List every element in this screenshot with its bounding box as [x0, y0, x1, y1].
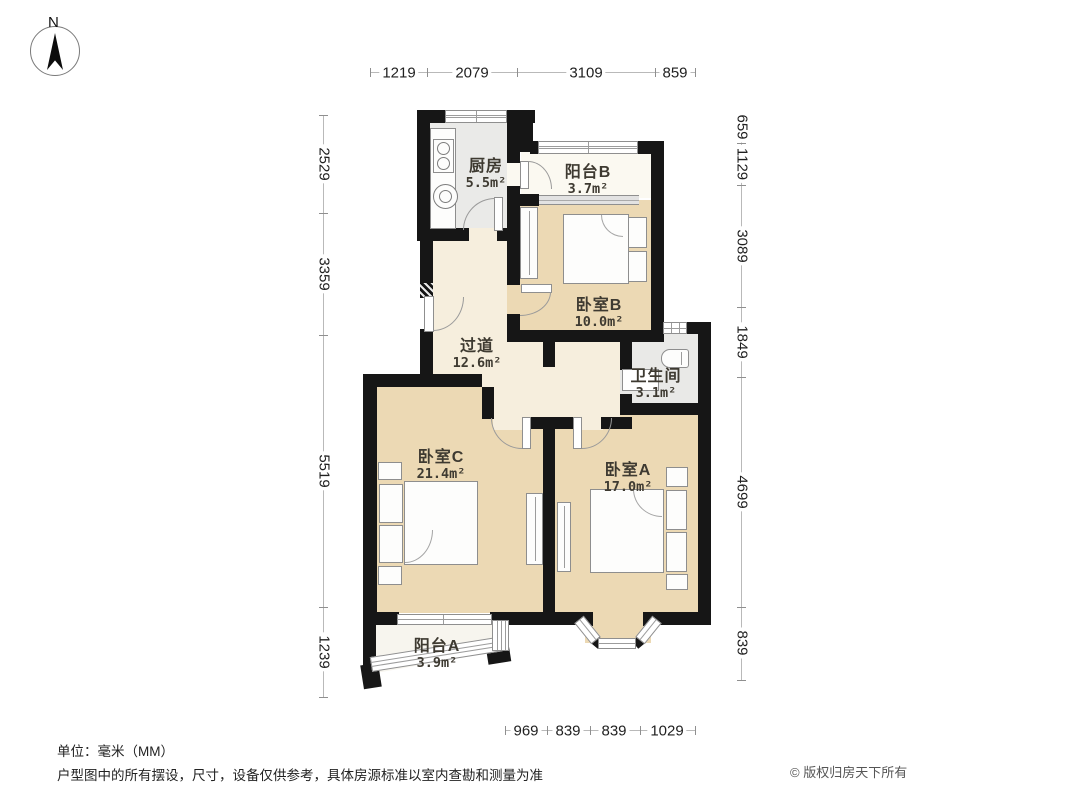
- wall: [651, 141, 664, 335]
- dimension-label: 2529: [316, 144, 333, 183]
- dimension-label: 969: [510, 723, 541, 740]
- wall: [363, 374, 377, 625]
- balcony-a-side-window: [492, 620, 509, 651]
- room-area: 21.4m²: [393, 467, 489, 483]
- wall: [543, 342, 555, 367]
- room-area: 17.0m²: [580, 480, 676, 496]
- dimension-label: 5519: [316, 451, 333, 490]
- pillow: [628, 251, 647, 282]
- floorplan-page: { "compass": { "label": "N" }, "dims": {…: [0, 0, 1066, 800]
- pillow: [666, 490, 687, 530]
- room-name: 卫生间: [608, 368, 704, 386]
- dimension-label: 859: [659, 65, 690, 82]
- dimension-tick: [590, 726, 591, 735]
- room-area: 3.1m²: [608, 386, 704, 402]
- dimension-label: 3109: [566, 65, 605, 82]
- dimension-label: 4699: [734, 472, 751, 511]
- room-label-hallway: 过道 12.6m²: [429, 338, 525, 372]
- wall: [507, 194, 539, 206]
- bedroom-c-door-leaf: [522, 417, 531, 449]
- kitchen-door-leaf: [494, 197, 503, 231]
- dimension-tick: [737, 185, 746, 186]
- pillow: [379, 484, 403, 523]
- dimension-tick: [737, 607, 746, 608]
- dimension-label: 839: [734, 627, 751, 658]
- stove-burner-icon: [437, 142, 450, 155]
- wall: [417, 110, 430, 241]
- wall: [507, 330, 664, 342]
- bay-window-front: [598, 638, 636, 649]
- dimension-line: [741, 113, 742, 680]
- dimension-label: 839: [598, 723, 629, 740]
- pillow: [666, 532, 687, 572]
- dimension-tick: [695, 726, 696, 735]
- wall: [507, 121, 520, 163]
- wall: [420, 241, 433, 285]
- door-gap-floor: [507, 285, 520, 314]
- bedroom-a-door-leaf: [573, 417, 582, 449]
- disclaimer-text: 户型图中的所有摆设，尺寸，设备仅供参考，具体房源标准以室内查勘和测量为准: [57, 764, 543, 784]
- dimension-tick: [319, 115, 328, 116]
- dimension-tick: [640, 726, 641, 735]
- dimension-tick: [319, 213, 328, 214]
- wall: [417, 228, 469, 241]
- dimension-tick: [737, 680, 746, 681]
- room-name: 卧室C: [393, 449, 489, 467]
- wall: [507, 203, 520, 285]
- dimension-tick: [695, 68, 696, 77]
- room-area: 12.6m²: [429, 356, 525, 372]
- dimension-label: 1219: [379, 65, 418, 82]
- room-label-kitchen: 厨房 5.5m²: [438, 158, 534, 192]
- room-label-bedroom-b: 卧室B 10.0m²: [551, 297, 647, 331]
- toilet-icon: [661, 349, 689, 368]
- dimension-tick: [547, 726, 548, 735]
- wall: [482, 387, 494, 419]
- room-area: 3.7m²: [540, 182, 636, 198]
- room-area: 10.0m²: [551, 315, 647, 331]
- kitchen-sink-icon: [439, 190, 452, 203]
- unit-note: 单位：毫米（MM）: [57, 740, 174, 760]
- room-label-bedroom-c: 卧室C 21.4m²: [393, 449, 489, 483]
- dimension-label: 1849: [734, 322, 751, 361]
- dimension-tick: [319, 607, 328, 608]
- dimension-tick: [370, 68, 371, 77]
- room-name: 阳台A: [389, 638, 485, 656]
- room-name: 厨房: [438, 158, 534, 176]
- wall: [543, 417, 555, 625]
- dimension-label: 1239: [316, 632, 333, 671]
- room-area: 3.9m²: [389, 656, 485, 672]
- wardrobe: [557, 502, 571, 572]
- compass-north-label: N: [48, 14, 59, 31]
- dimension-tick: [319, 697, 328, 698]
- dimension-label: 839: [552, 723, 583, 740]
- copyright-text: © 版权归房天下所有: [790, 762, 907, 781]
- dimension-label: 2079: [452, 65, 491, 82]
- dimension-line: [323, 115, 324, 697]
- wall: [620, 403, 711, 415]
- dimension-tick: [427, 68, 428, 77]
- wardrobe: [520, 207, 538, 279]
- room-name: 卧室B: [551, 297, 647, 315]
- room-name: 阳台B: [540, 164, 636, 182]
- dimension-tick: [655, 68, 656, 77]
- wardrobe: [526, 493, 543, 565]
- room-label-bathroom: 卫生间 3.1m²: [608, 368, 704, 402]
- dimension-label: 3089: [734, 226, 751, 265]
- nightstand: [378, 566, 402, 585]
- room-name: 过道: [429, 338, 525, 356]
- balcony-b-window: [538, 141, 638, 154]
- bedroom-c-balcony-window: [397, 614, 492, 625]
- dimension-line: [370, 72, 695, 73]
- room-label-balcony-a: 阳台A 3.9m²: [389, 638, 485, 672]
- dimension-label: 1029: [647, 723, 686, 740]
- dimension-label: 3359: [316, 254, 333, 293]
- dimension-tick: [517, 68, 518, 77]
- dimension-label: 1129: [734, 145, 751, 183]
- wall: [417, 110, 447, 123]
- dimension-tick: [737, 377, 746, 378]
- room-label-bedroom-a: 卧室A 17.0m²: [580, 462, 676, 496]
- bathroom-window: [663, 322, 687, 334]
- dimension-tick: [319, 335, 328, 336]
- pillow: [379, 525, 403, 563]
- dimension-tick: [505, 726, 506, 735]
- room-area: 5.5m²: [438, 176, 534, 192]
- room-label-balcony-b: 阳台B 3.7m²: [540, 164, 636, 198]
- room-name: 卧室A: [580, 462, 676, 480]
- dimension-tick: [737, 307, 746, 308]
- dimension-tick: [737, 143, 746, 144]
- pillow: [628, 217, 647, 248]
- kitchen-window: [445, 110, 507, 123]
- dimension-label: 659: [734, 111, 751, 142]
- nightstand: [666, 574, 688, 590]
- wall: [620, 342, 632, 370]
